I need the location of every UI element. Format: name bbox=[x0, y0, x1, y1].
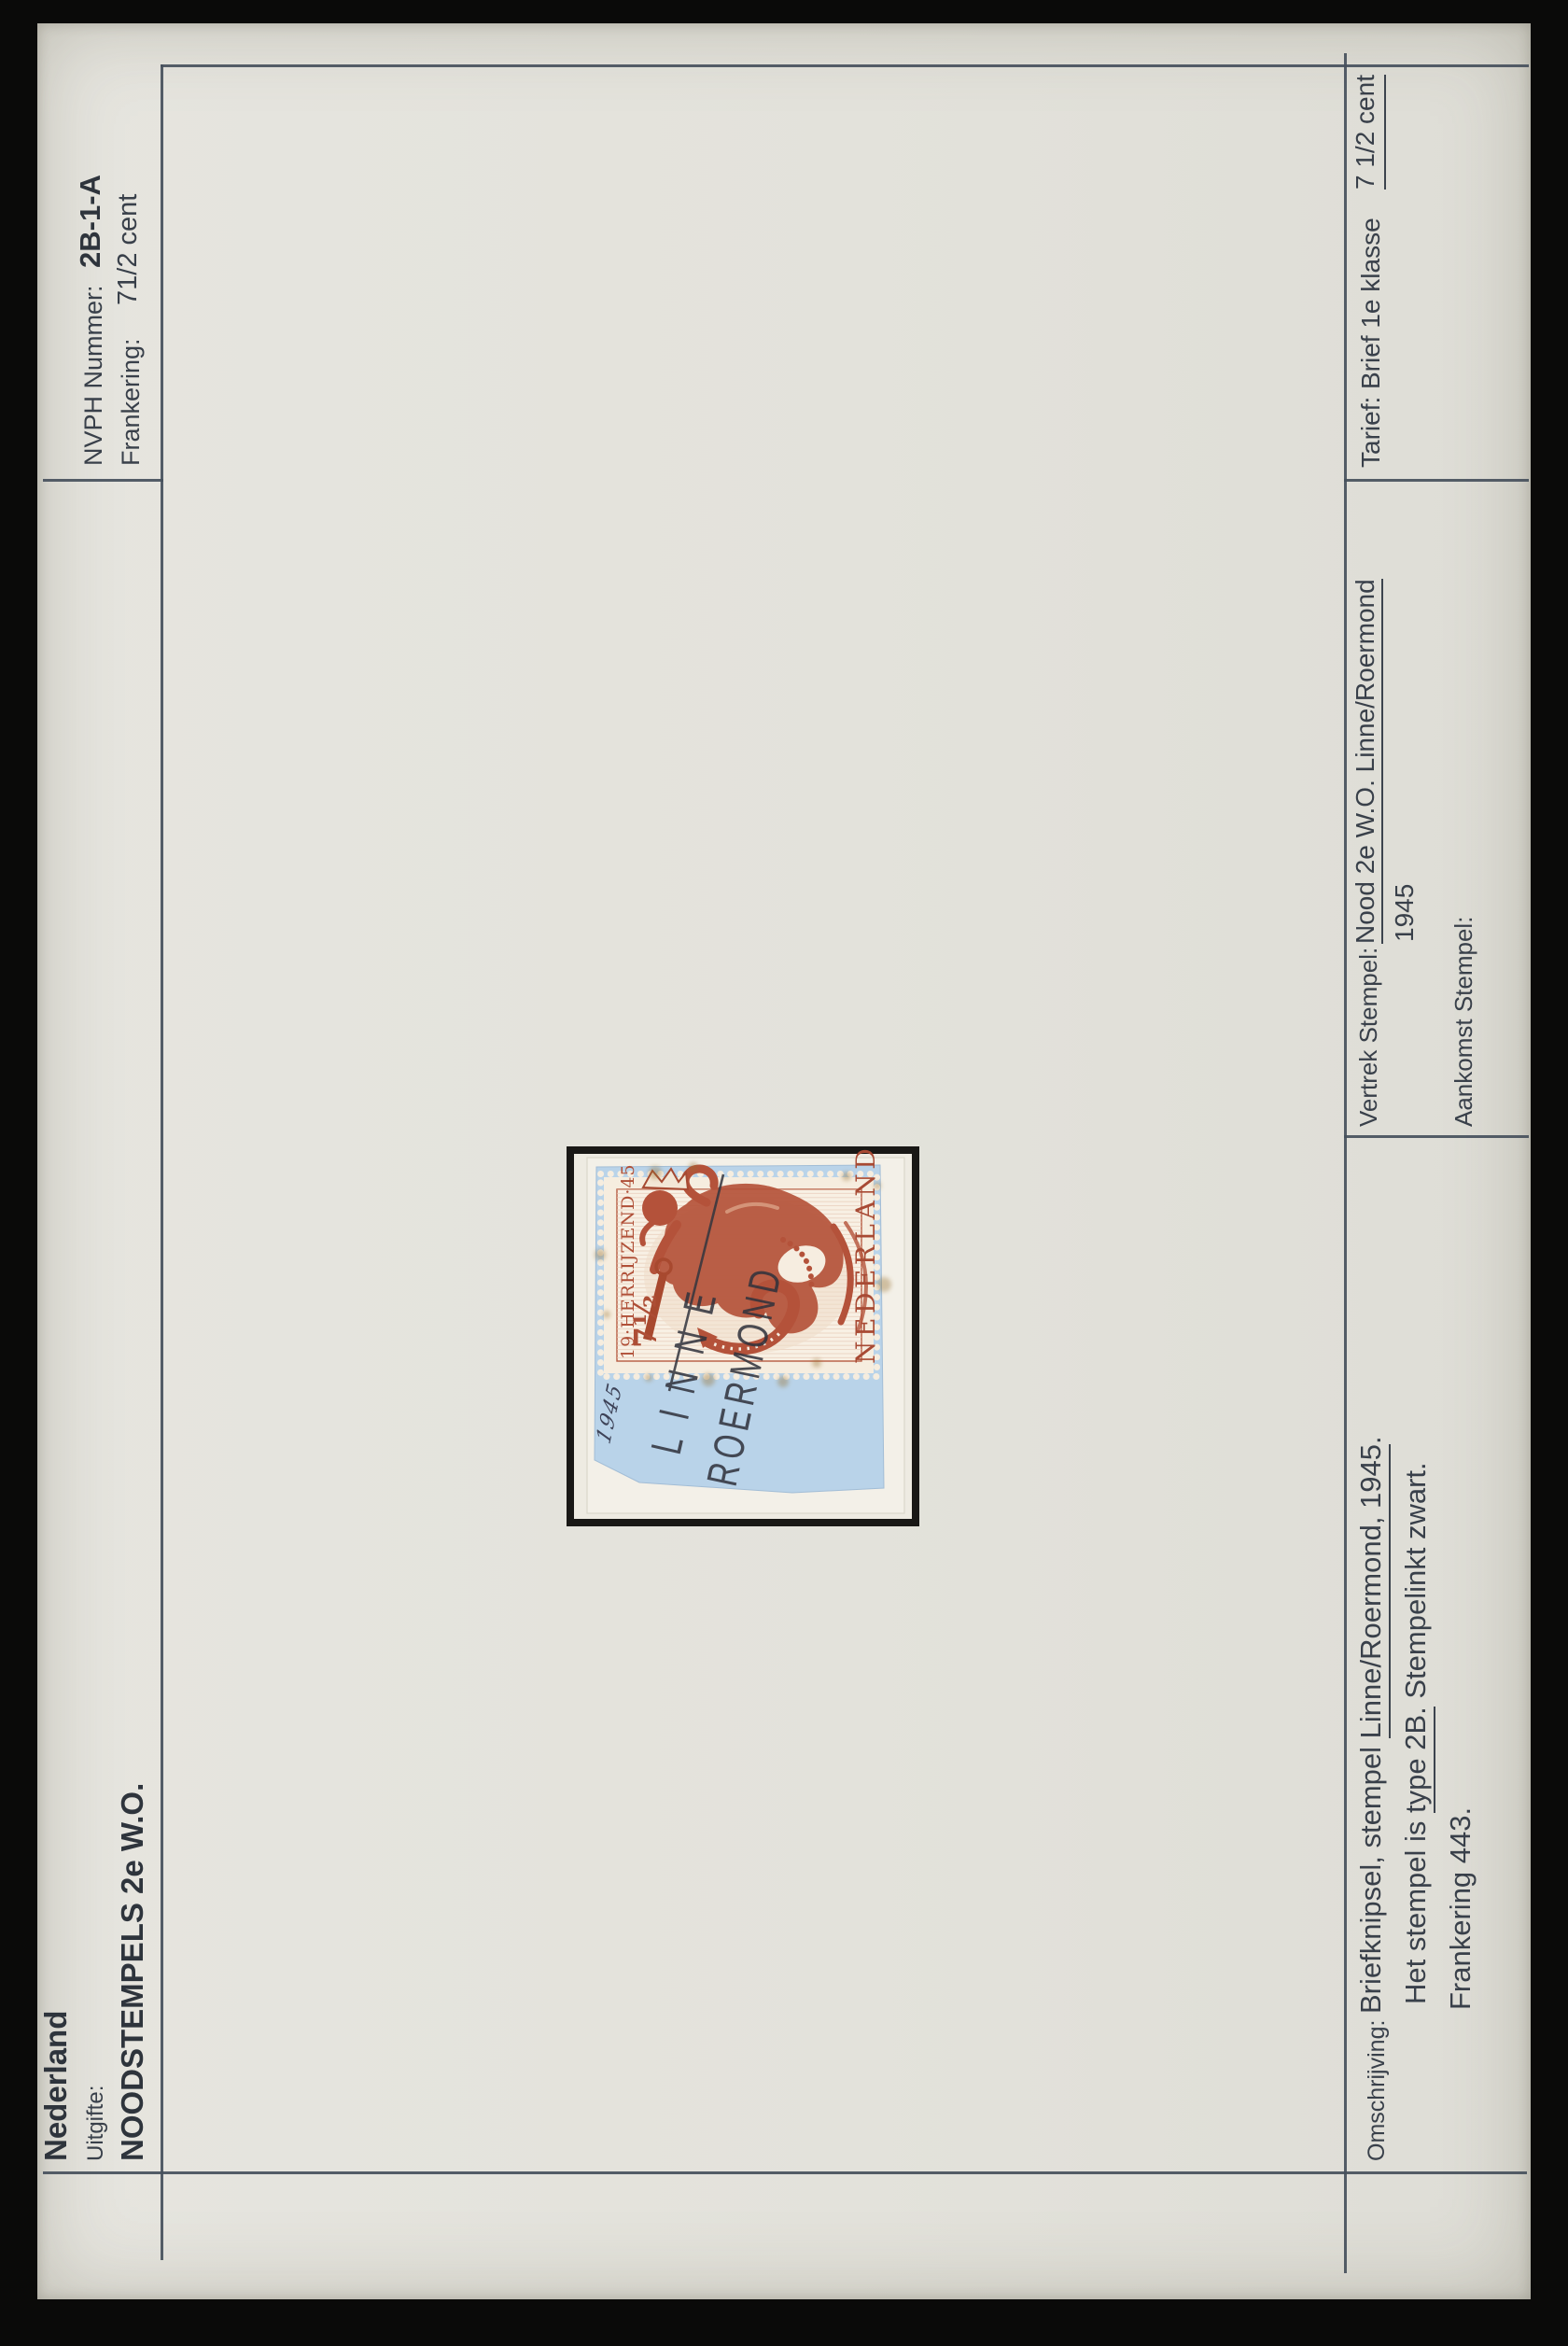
description-line2-plain: Het stempel is bbox=[1399, 1813, 1432, 2004]
vertrek-stempel-value: Nood 2e W.O. Linne/Roermond bbox=[1351, 579, 1380, 944]
nvph-number-value: 2B-1-A bbox=[75, 175, 106, 268]
strip-divider-line-1 bbox=[1344, 1135, 1529, 1138]
stamp-face-value: 7½ bbox=[627, 1295, 664, 1348]
left-margin-line bbox=[43, 2171, 1527, 2174]
header-separator-line bbox=[161, 64, 163, 2260]
omschrijving-label: Omschrijving: bbox=[1365, 2020, 1391, 2161]
description-line-2: Het stempel is type 2B. Stempelinkt zwar… bbox=[1400, 1462, 1432, 2004]
vertrek-stempel-year: 1945 bbox=[1391, 884, 1420, 942]
vertrek-stempel-label: Vertrek Stempel: bbox=[1355, 948, 1382, 1127]
rotated-album-scan: Nederland Uitgifte: NOODSTEMPELS 2e W.O.… bbox=[0, 0, 1568, 2346]
aankomst-stempel-label: Aankomst Stempel: bbox=[1450, 917, 1477, 1127]
description-line2-tail: Stempelinkt zwart. bbox=[1399, 1462, 1432, 1707]
stamp-country-inscription: NEDERLAND bbox=[850, 1146, 881, 1364]
series-title: NOODSTEMPELS 2e W.O. bbox=[116, 1783, 149, 2161]
rate-note: 7 1/2 cent bbox=[1351, 75, 1380, 190]
description-line-3: Frankering 443. bbox=[1445, 1807, 1477, 2010]
rate-note-text: 7 1/2 cent bbox=[1351, 75, 1386, 190]
vertrek-stempel-value-text: Nood 2e W.O. Linne/Roermond bbox=[1351, 579, 1383, 944]
description-line1-plain: Briefknipsel, stempel bbox=[1354, 1738, 1387, 2014]
frankering-value: 71/2 cent bbox=[114, 194, 144, 305]
description-line1-underlined: Linne/Roermond, 1945 bbox=[1354, 1444, 1391, 1738]
tarief-label: Tarief: bbox=[1357, 397, 1386, 468]
description-line1-period: . bbox=[1354, 1436, 1387, 1444]
frankering-label: Frankering: bbox=[118, 338, 146, 466]
description-line-1: Briefknipsel, stempel Linne/Roermond, 19… bbox=[1355, 1436, 1387, 2014]
description-line2-underlined: type 2B. bbox=[1399, 1707, 1435, 1813]
nvph-number-label: NVPH Nummer: bbox=[80, 285, 108, 466]
country-title: Nederland bbox=[39, 2011, 73, 2161]
photo-backdrop: Nederland Uitgifte: NOODSTEMPELS 2e W.O.… bbox=[0, 0, 1568, 2346]
bottom-strip-line bbox=[1344, 53, 1347, 2273]
right-column-line bbox=[161, 64, 1529, 67]
stamp-mount: 19·HERRIJZEND·45 7½ NEDERLAND LINNE ROER… bbox=[567, 1146, 919, 1526]
uitgifte-label: Uitgifte: bbox=[84, 2086, 108, 2161]
strip-divider-line-2 bbox=[1344, 479, 1529, 482]
header-divider-line bbox=[43, 479, 163, 482]
stamp-clipping-art: 19·HERRIJZEND·45 7½ NEDERLAND LINNE ROER… bbox=[567, 1146, 919, 1526]
tarief-value: Brief 1e klasse bbox=[1357, 218, 1386, 389]
